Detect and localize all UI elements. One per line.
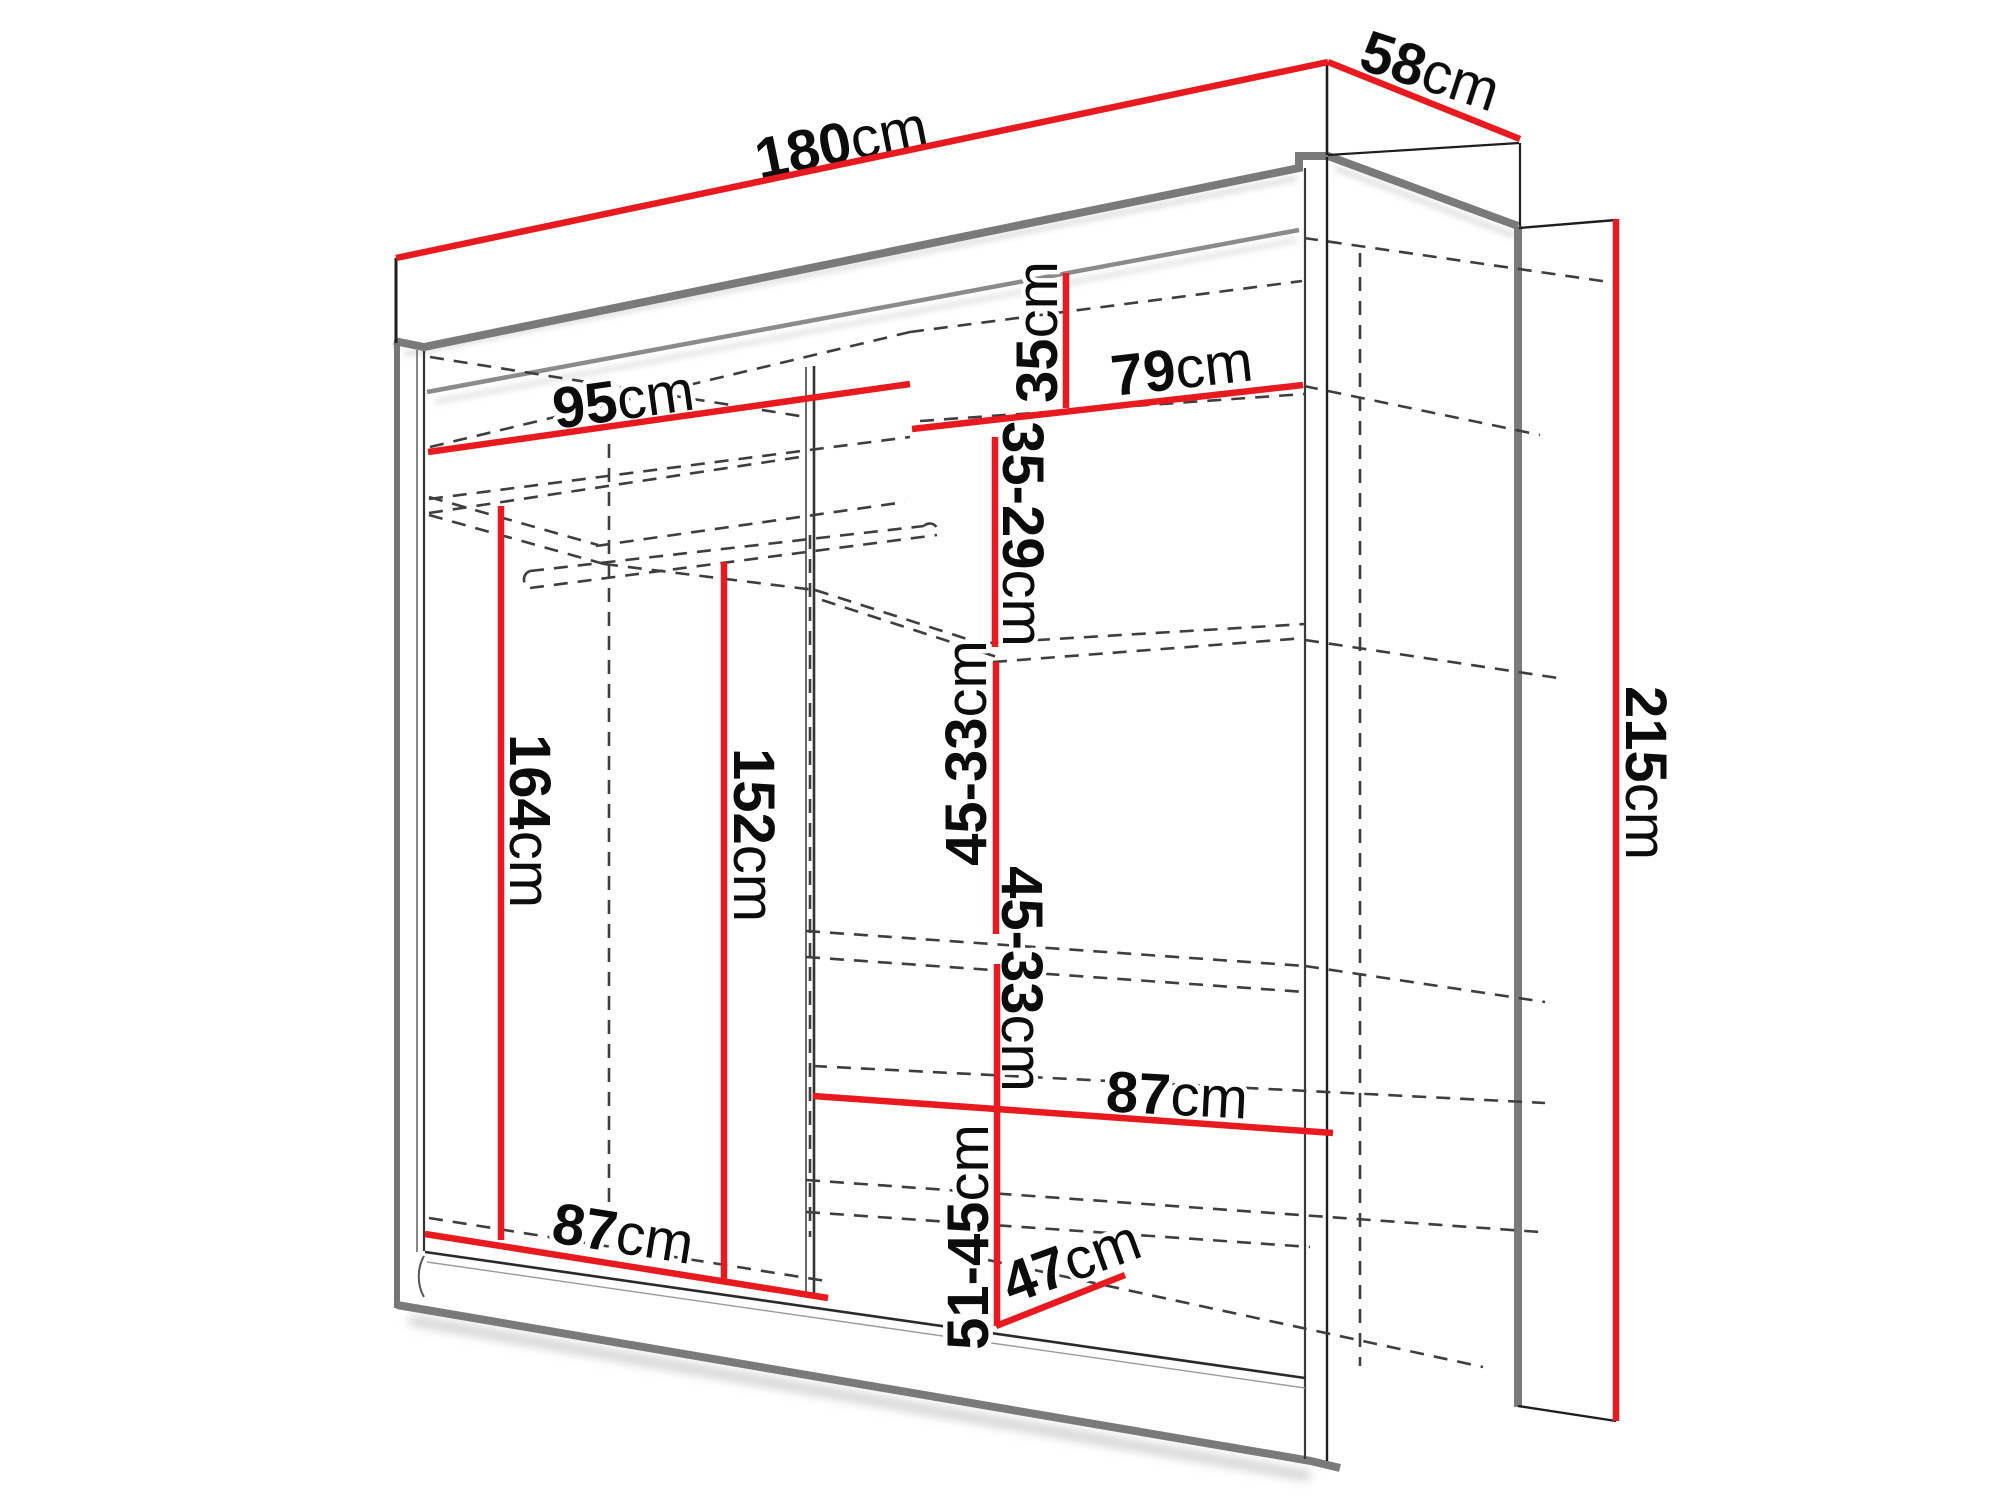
svg-text:152cm: 152cm: [721, 748, 786, 922]
svg-text:215cm: 215cm: [1613, 686, 1678, 860]
svg-text:164cm: 164cm: [497, 734, 562, 908]
svg-text:45-33cm: 45-33cm: [934, 640, 999, 866]
svg-text:47cm: 47cm: [994, 1207, 1150, 1317]
svg-text:35cm: 35cm: [1005, 261, 1070, 403]
svg-text:58cm: 58cm: [1353, 19, 1508, 125]
svg-text:35-29cm: 35-29cm: [990, 421, 1055, 647]
svg-text:51-45cm: 51-45cm: [936, 1124, 1001, 1350]
